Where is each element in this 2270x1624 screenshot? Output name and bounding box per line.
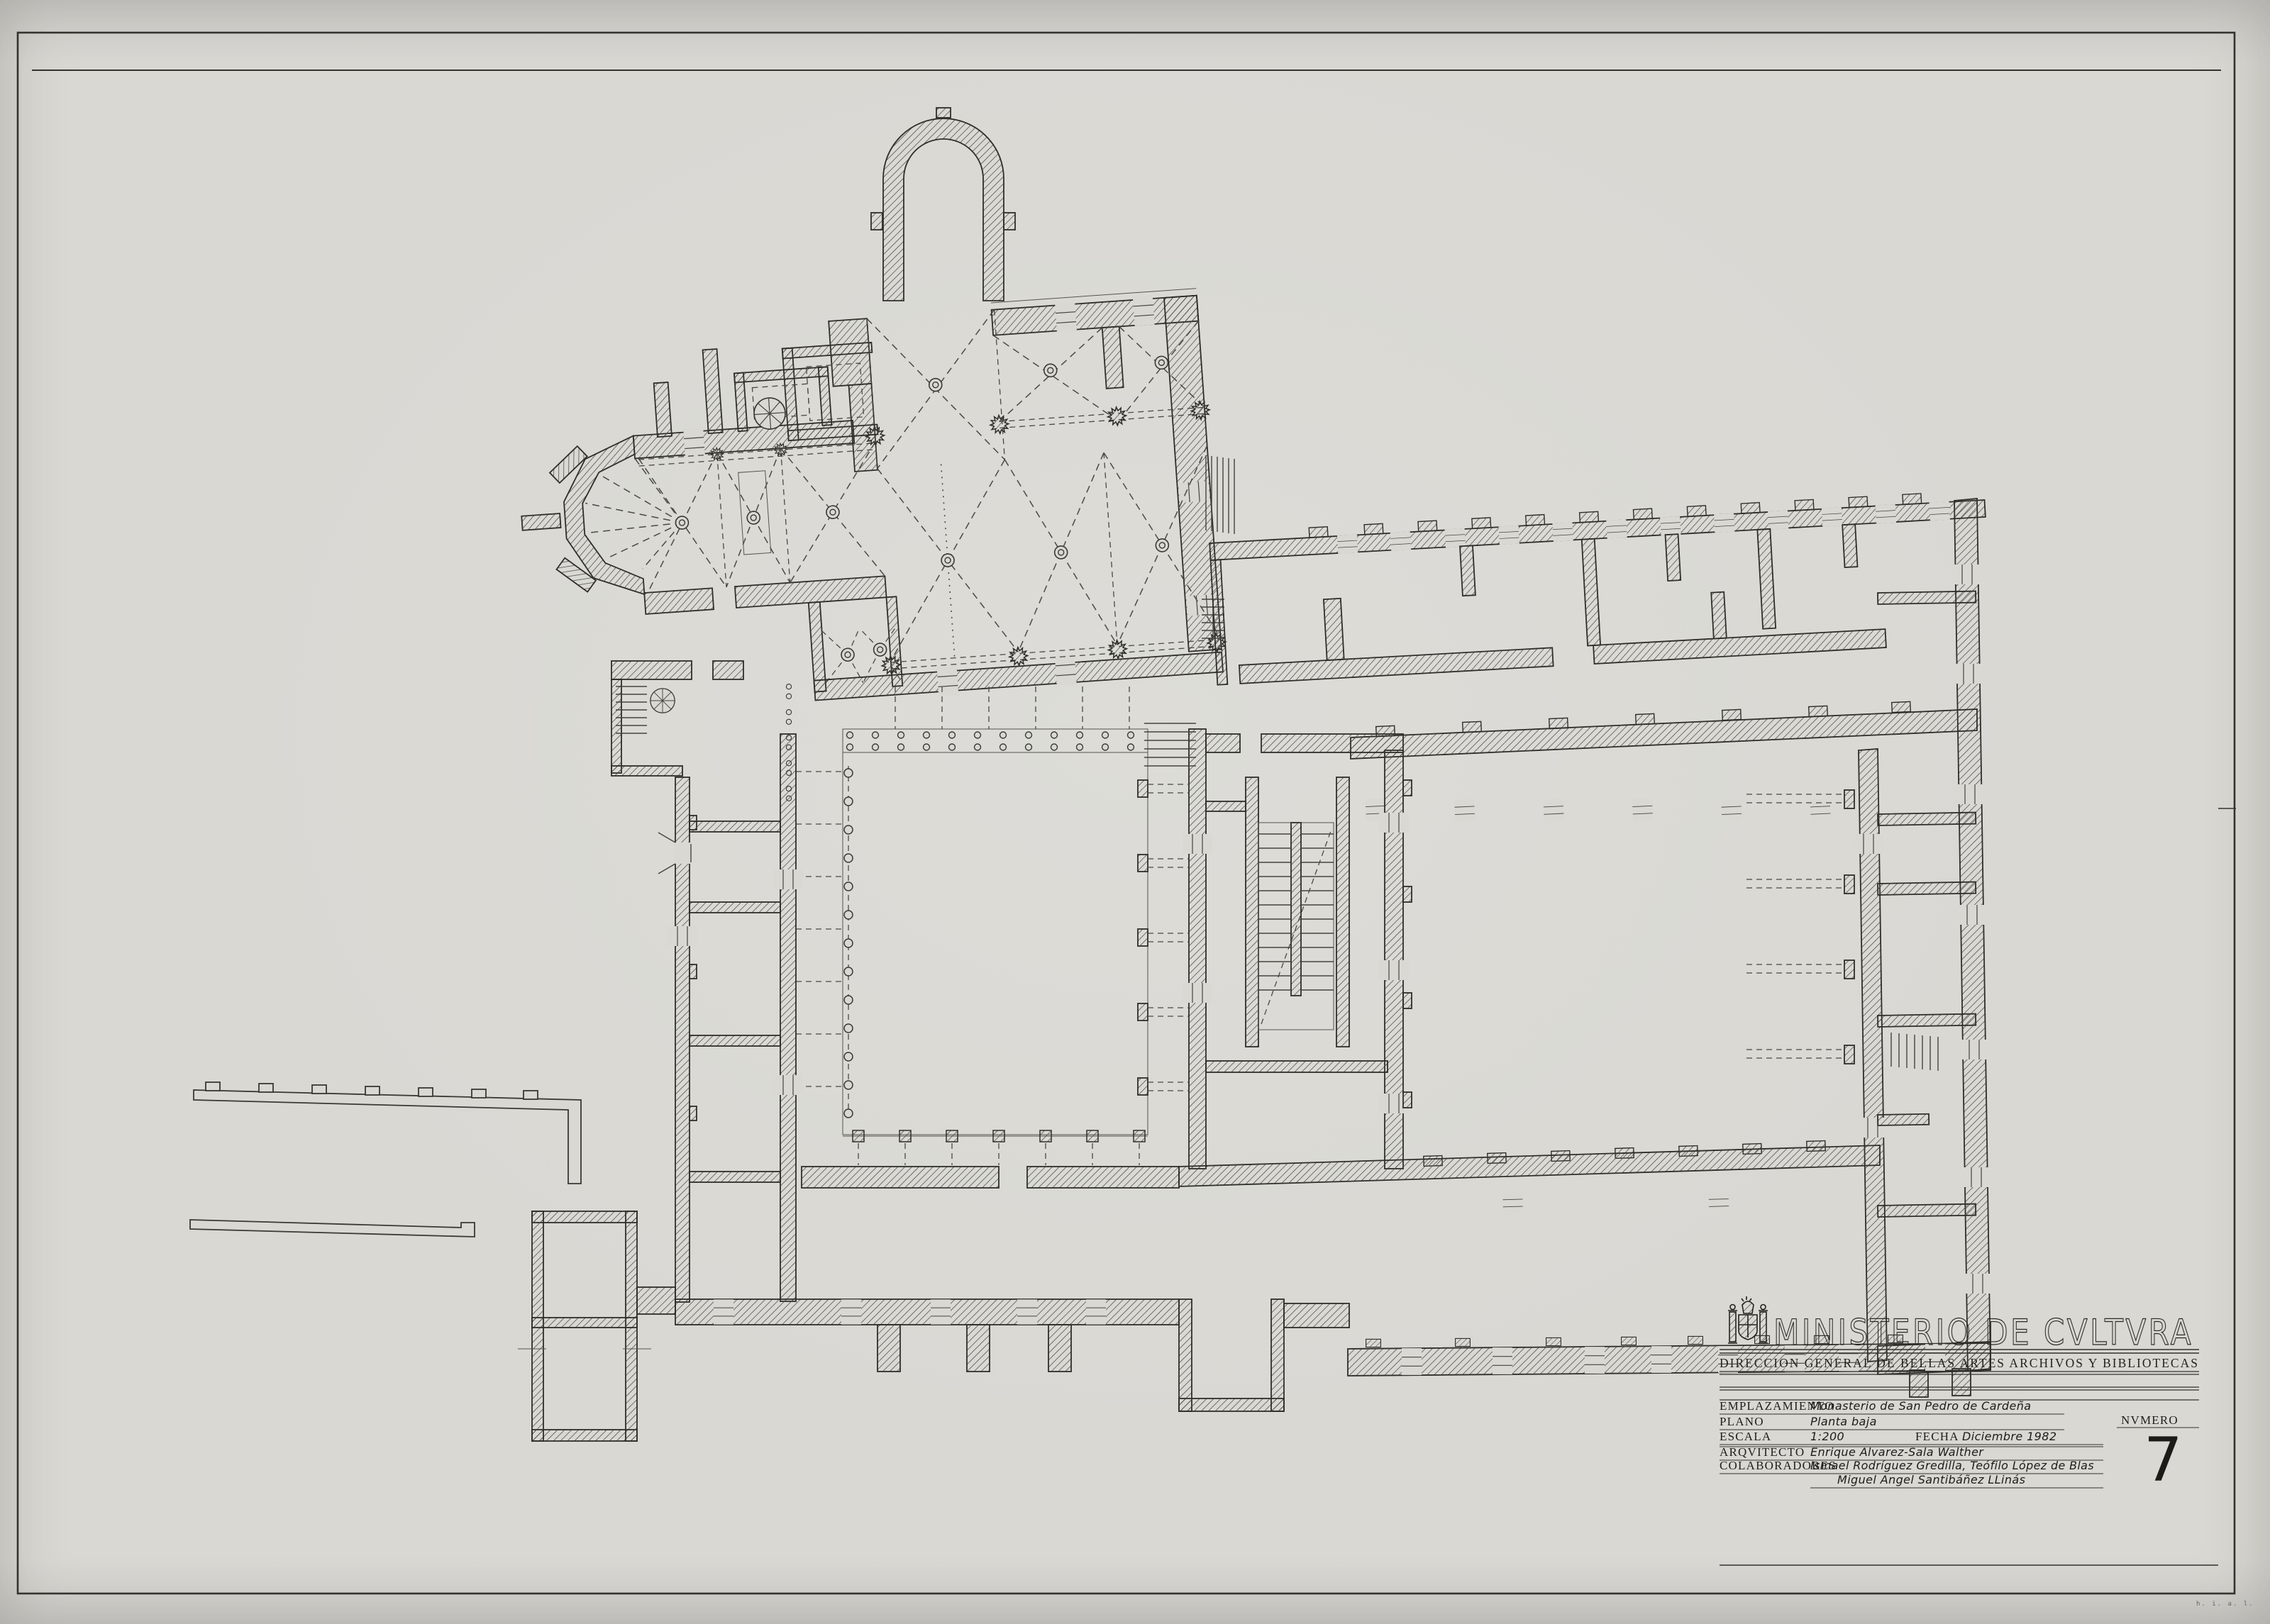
field-value: Monasterio de San Pedro de Cardeña xyxy=(1810,1399,2031,1413)
cloister-garth xyxy=(843,729,1148,1135)
east-range-stair xyxy=(1891,1033,1938,1071)
north-wing xyxy=(1209,490,1992,685)
field-value: Miguel Angel Santibáñez LLinás xyxy=(1837,1473,2025,1486)
refectory-north-wall xyxy=(1179,1145,1880,1186)
field-value: Enrique Alvarez-Sala Walther xyxy=(1810,1445,1984,1459)
monastery-plan xyxy=(190,108,2270,1624)
print-mark: h. i. a. l. xyxy=(2196,1601,2254,1608)
west-polygonal-chapel xyxy=(516,436,644,603)
field-label: ARQVITECTO xyxy=(1720,1445,1805,1459)
title-fields: EMPLAZAMIENTO Monasterio de San Pedro de… xyxy=(1720,1399,2199,1488)
fecha-value: Diciembre 1982 xyxy=(1962,1430,2056,1443)
cloister xyxy=(611,661,1212,1169)
south-colonnade xyxy=(843,1130,1148,1165)
field-value: Planta baja xyxy=(1810,1415,1877,1428)
tower-link-wall xyxy=(637,1287,675,1314)
direction-subtitle: DIRECCION GENERAL DE BELLAS ARTES ARCHIV… xyxy=(1720,1356,2199,1370)
courtyard-east-piers xyxy=(1746,790,1854,1064)
field-value: Ismael Rodríguez Gredilla, Teófilo López… xyxy=(1810,1459,2094,1472)
title-block: MINISTERIO DE CVLTVRA DIRECCION GENERAL … xyxy=(1720,1296,2254,1608)
east-outer-wall xyxy=(1954,499,1991,1371)
sheet-number: 7 xyxy=(2144,1425,2183,1496)
boundary-wall xyxy=(190,1082,581,1237)
field-label: ESCALA xyxy=(1720,1430,1771,1443)
stair-hall xyxy=(1206,734,1403,1072)
drawing-sheet: MINISTERIO DE CVLTVRA DIRECCION GENERAL … xyxy=(0,0,2270,1624)
church-apse xyxy=(871,108,1015,301)
buttress xyxy=(967,1325,990,1372)
cloister-ne-steps xyxy=(1144,723,1196,766)
fecha-label: FECHA xyxy=(1915,1430,1959,1443)
field-label: PLANO xyxy=(1720,1415,1764,1428)
spiral-stair-icon xyxy=(650,689,675,713)
buttress xyxy=(877,1325,900,1372)
west-colonnade xyxy=(796,766,853,1118)
west-porch xyxy=(611,661,792,801)
east-walk xyxy=(1138,729,1212,1169)
chapel-partition xyxy=(1102,326,1124,388)
stair-spine-wall xyxy=(1291,823,1301,996)
west-inner-wall xyxy=(780,734,796,1301)
plan-svg: MINISTERIO DE CVLTVRA DIRECCION GENERAL … xyxy=(0,0,2270,1624)
field-value: 1:200 xyxy=(1810,1430,1844,1443)
north-colonnade xyxy=(847,686,1134,750)
escudo-de-espana-icon xyxy=(1728,1296,1768,1343)
church xyxy=(509,288,1229,725)
west-range xyxy=(658,734,803,1302)
ministry-title: MINISTERIO DE CVLTVRA xyxy=(1773,1312,2193,1353)
buttress xyxy=(1048,1325,1071,1372)
courtyard-north-wall xyxy=(1351,709,1977,759)
